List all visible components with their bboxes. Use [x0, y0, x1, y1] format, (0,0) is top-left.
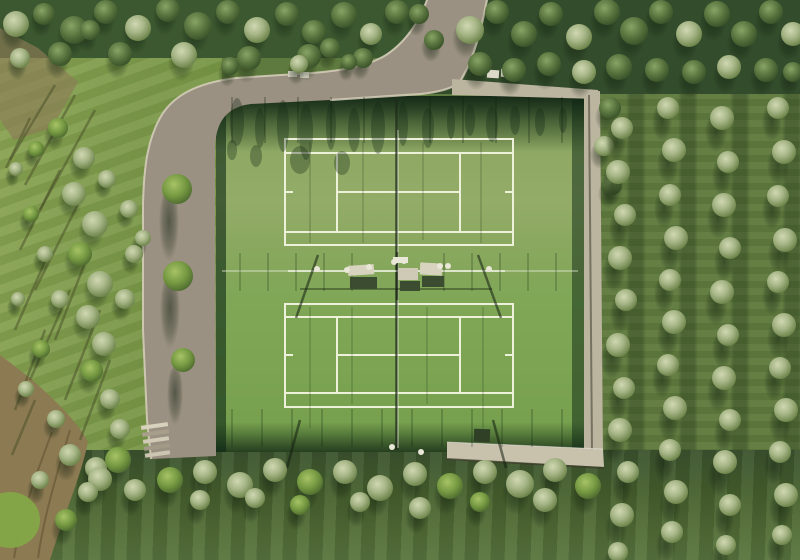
- bench-shadow: [400, 281, 420, 291]
- terrace-line: [55, 250, 90, 340]
- ground-details: [0, 28, 110, 560]
- scene-overlay: [0, 0, 800, 560]
- tree-shadow-on-court: [510, 105, 520, 135]
- tree-shadow-on-court: [348, 108, 360, 152]
- tree-shadow-on-court: [535, 108, 545, 136]
- fence-band-right: [572, 96, 584, 452]
- wall-right: [584, 91, 603, 458]
- path-bench: [300, 72, 309, 78]
- tree-shadow-on-court: [465, 104, 475, 136]
- tree-shadow-on-court: [447, 105, 455, 139]
- terrace-line: [30, 290, 70, 380]
- bench-shadow: [422, 276, 444, 287]
- tree-shadow-on-court: [559, 107, 567, 133]
- white-marker: [366, 264, 372, 270]
- white-marker: [486, 266, 492, 272]
- white-marker: [401, 258, 407, 264]
- tree-shadow-on-court: [255, 108, 265, 148]
- path-bench: [288, 71, 297, 77]
- tree-shadow-on-court: [334, 151, 350, 175]
- wall-sign: [501, 69, 508, 77]
- bench-shadow: [350, 277, 377, 289]
- terrace-line: [35, 200, 80, 290]
- equipment-box: [474, 429, 490, 443]
- white-marker: [391, 259, 397, 265]
- white-marker: [344, 267, 350, 273]
- tree-shadow-on-court: [277, 100, 289, 152]
- fence-band-left: [216, 96, 226, 452]
- bench: [398, 268, 418, 280]
- tree-shadow-on-court: [371, 102, 385, 154]
- white-marker: [418, 449, 424, 455]
- tree-shadow-on-court: [250, 145, 262, 167]
- white-marker: [389, 444, 395, 450]
- white-marker: [314, 266, 320, 272]
- dirt-terrace-patch: [0, 28, 78, 140]
- wall-sign: [487, 70, 500, 79]
- terrace-line: [15, 250, 50, 330]
- tree-shadow-on-court: [398, 102, 408, 146]
- tree-shadow-on-court: [290, 146, 310, 174]
- white-marker: [437, 263, 443, 269]
- aerial-photo-tennis-courts: [0, 0, 800, 560]
- terrace-line: [65, 310, 100, 400]
- terrace-line: [80, 360, 110, 440]
- white-marker: [445, 263, 451, 269]
